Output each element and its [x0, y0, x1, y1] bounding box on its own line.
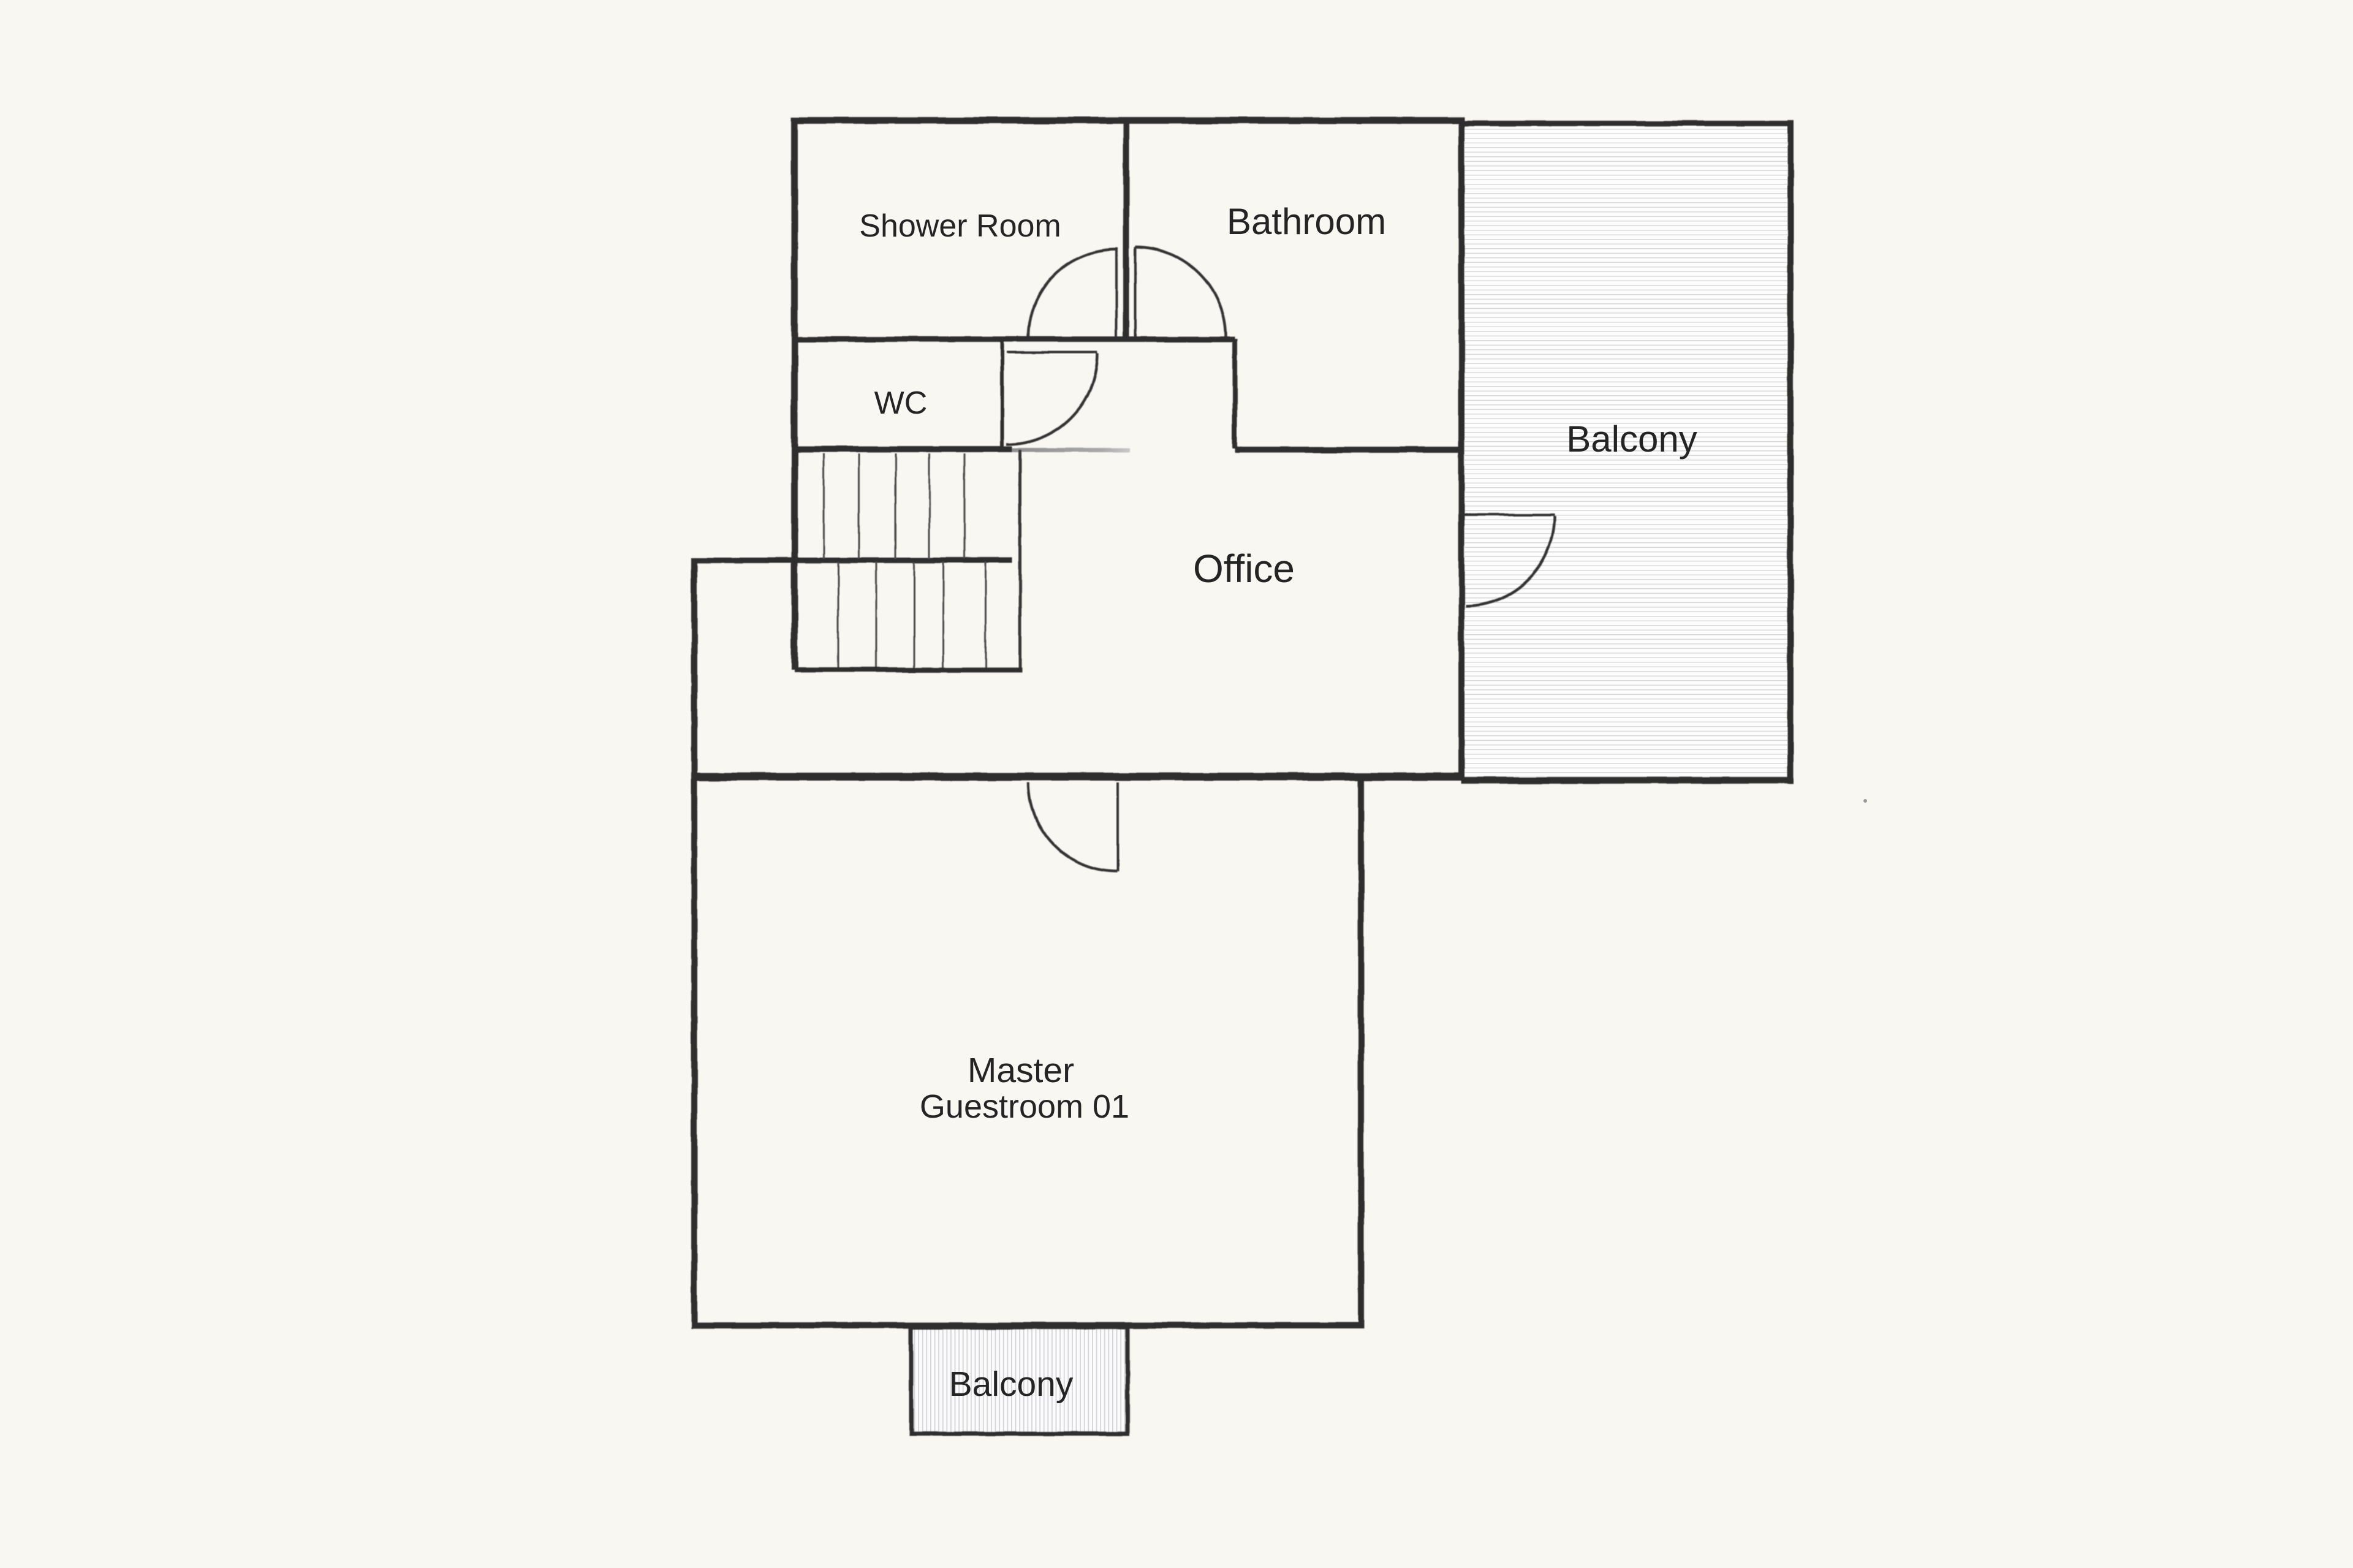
- svg-text:Shower Room: Shower Room: [859, 208, 1061, 244]
- svg-text:Master: Master: [968, 1051, 1074, 1090]
- svg-text:Balcony: Balcony: [1566, 419, 1697, 460]
- svg-text:Office: Office: [1193, 547, 1295, 591]
- svg-text:Bathroom: Bathroom: [1227, 201, 1386, 242]
- svg-text:WC: WC: [874, 385, 928, 421]
- svg-text:Guestroom 01: Guestroom 01: [920, 1088, 1129, 1125]
- svg-text:Balcony: Balcony: [949, 1365, 1074, 1404]
